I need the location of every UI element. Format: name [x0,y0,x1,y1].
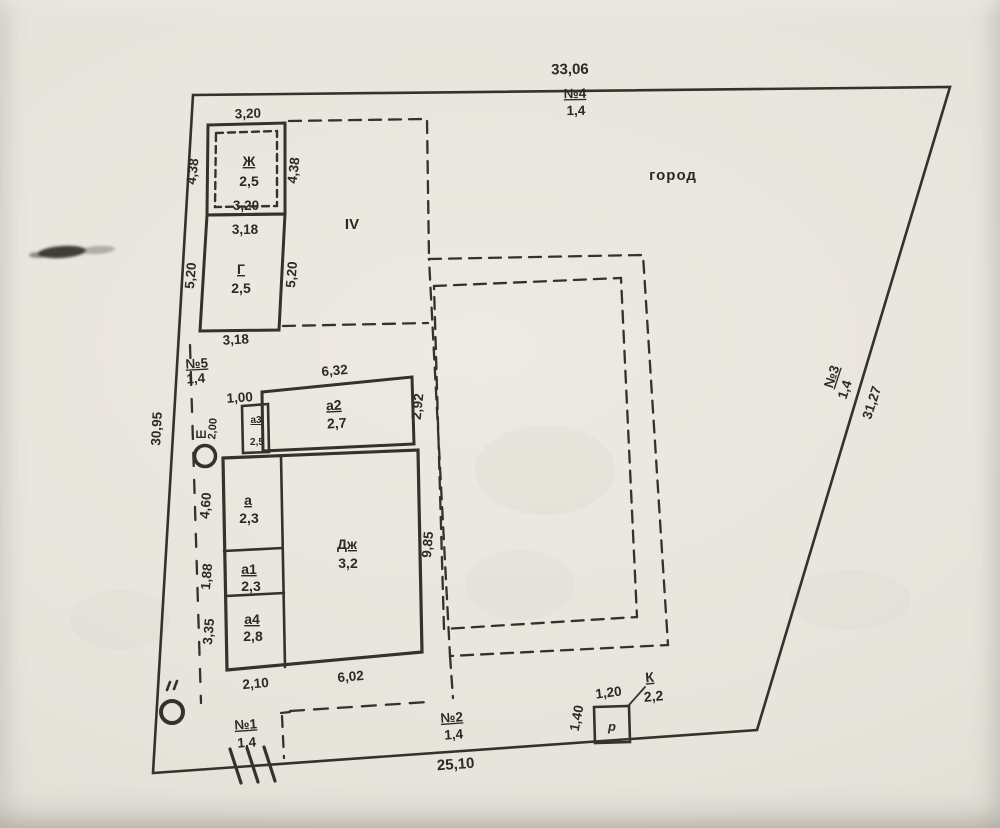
well-ring-lower [161,701,183,723]
a-mark-label: 2,3 [239,510,259,526]
a3-mark-label: 2,5 [250,437,264,448]
well-ring-upper [195,446,216,467]
dzh-mark-label: 3,2 [338,555,358,571]
k-left-side-label: 1,40 [567,704,587,733]
south1-ref-label: №1 [234,716,258,733]
building-zh-inner-dashed [215,131,277,207]
g-top-width-label: 3,18 [232,222,259,237]
k-top-width-label: 1,20 [594,683,622,701]
zh-bottom-width-label: 3,20 [233,198,259,213]
a2-right-side-label: 2,92 [409,393,427,421]
a2-room-label: а2 [326,397,343,414]
south2-fence-height-label: 1,4 [444,726,464,742]
a-room-label: а [244,492,252,508]
courtyard-dashed-fence [190,345,201,703]
scanned-site-plan-page: 33,06 №4 1,4 город №3 1,4 31,27 30,95 №5… [0,0,1000,828]
a3-room-label: а3 [250,415,262,426]
west-ref-label: №5 [185,355,209,371]
south-length-label: 25,10 [436,755,475,775]
bottom-dashed-fence [281,702,428,758]
region-label: город [649,167,697,184]
zh-mark-label: 2,5 [239,173,259,189]
g-bottom-width-label: 3,18 [222,331,250,347]
a4-room-label: а4 [244,611,260,627]
k-room-label: К [645,669,655,686]
a4-left-side-label: 3,35 [200,617,217,645]
zh-top-width-label: 3,20 [234,106,261,122]
a4-mark-label: 2,8 [243,628,263,644]
zh-right-side-label: 4,38 [284,156,302,184]
a1-room-label: а1 [241,561,257,577]
well-upper-label: Ш [195,429,206,441]
g-left-side-label: 5,20 [182,262,199,289]
g-room-label: Г [237,261,245,277]
west-length-label: 30,95 [148,411,165,446]
dzh-bottom-width-label: 6,02 [337,668,364,685]
dzh-bottom-offset-label: 2,10 [242,675,269,692]
south1-fence-height-label: 1,4 [237,734,257,750]
scan-smudge [29,244,115,259]
south2-ref-label: №2 [440,709,464,726]
north-length-label: 33,06 [551,61,589,79]
zone-iv-label: IV [345,216,359,233]
k-mark-label: 2,2 [643,687,664,705]
a-left-side-label: 4,60 [197,492,214,519]
a2-top-width-label: 6,32 [321,362,348,379]
north-ref-label: №4 [564,86,587,101]
a2-mark-label: 2,7 [327,414,347,431]
g-mark-label: 2,5 [231,280,251,296]
zh-room-label: Ж [242,153,256,169]
a3-left-side-label: 2,00 [206,418,219,440]
a1-mark-label: 2,3 [241,578,261,594]
east-length-label: 31,27 [859,384,884,421]
k-inner-symbol: р [607,719,616,734]
a1-left-side-label: 1,88 [198,562,215,590]
dzh-right-side-label: 9,85 [419,530,436,558]
north-fence-height-label: 1,4 [566,103,586,118]
site-plan-drawing: 33,06 №4 1,4 город №3 1,4 31,27 30,95 №5… [0,0,1000,828]
zh-left-side-label: 4,38 [183,157,201,185]
dzh-room-label: Дж [337,536,358,552]
gate-tick-marks [230,747,275,783]
lower-well-tick-marks [167,681,177,690]
west-fence-height-label: 1,4 [186,371,206,387]
a2-offset-label: 1,00 [226,389,253,406]
g-right-side-label: 5,20 [283,261,300,288]
